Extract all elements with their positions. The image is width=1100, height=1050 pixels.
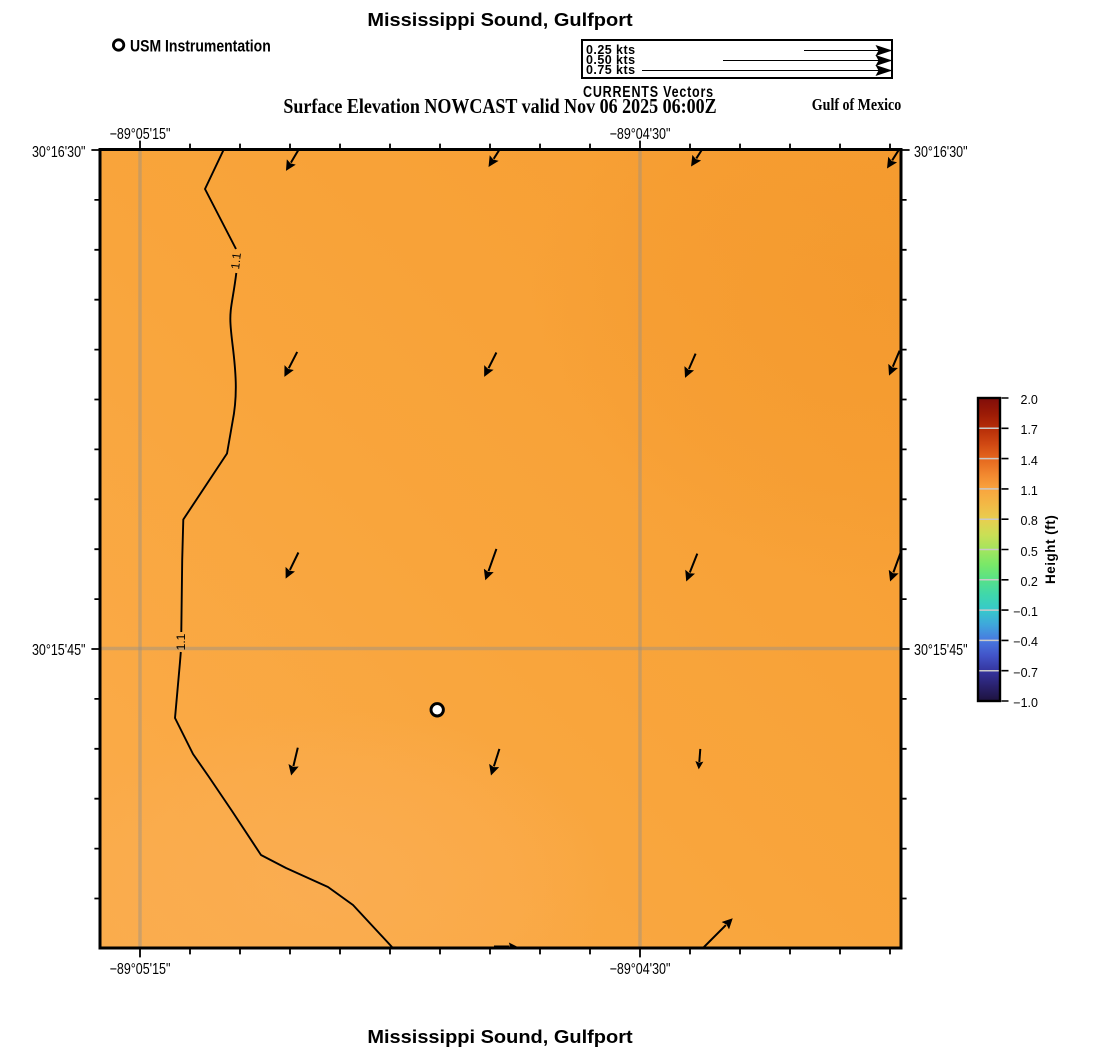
svg-text:1.1: 1.1 [228,251,244,270]
svg-text:1.1: 1.1 [174,633,188,650]
